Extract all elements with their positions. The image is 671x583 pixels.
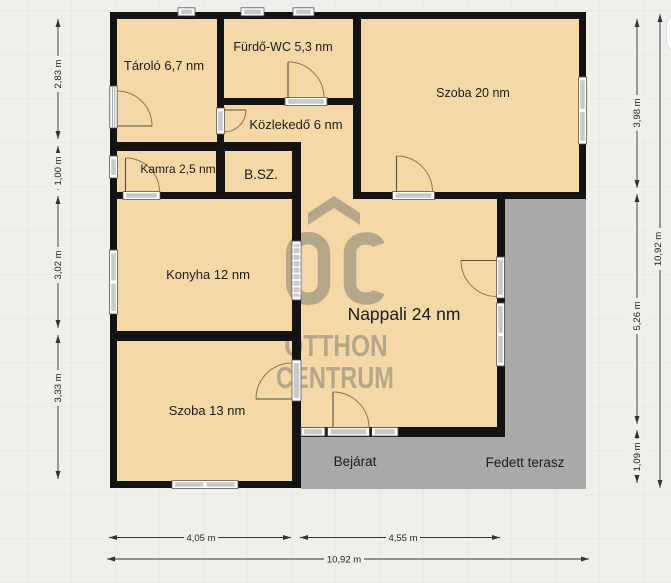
svg-text:3,33 m: 3,33 m bbox=[53, 373, 64, 402]
svg-text:B.SZ.: B.SZ. bbox=[244, 167, 278, 182]
svg-text:3,02 m: 3,02 m bbox=[53, 250, 64, 279]
svg-text:Szoba 13 nm: Szoba 13 nm bbox=[169, 403, 246, 418]
svg-text:3,98 m: 3,98 m bbox=[632, 98, 643, 127]
svg-text:10,92 m: 10,92 m bbox=[653, 232, 664, 266]
svg-text:Kamra 2,5 nm: Kamra 2,5 nm bbox=[140, 162, 215, 176]
svg-text:Nappali 24 nm: Nappali 24 nm bbox=[348, 304, 461, 324]
svg-text:1,00 m: 1,00 m bbox=[53, 156, 64, 185]
svg-text:Fedett terasz: Fedett terasz bbox=[486, 455, 565, 470]
svg-text:2,83 m: 2,83 m bbox=[53, 59, 64, 88]
svg-text:Tároló 6,7 nm: Tároló 6,7 nm bbox=[124, 58, 204, 73]
svg-text:10,92 m: 10,92 m bbox=[327, 555, 361, 566]
svg-text:4,55 m: 4,55 m bbox=[388, 533, 417, 544]
svg-text:4,05 m: 4,05 m bbox=[186, 533, 215, 544]
svg-text:Konyha 12 nm: Konyha 12 nm bbox=[166, 267, 250, 282]
svg-text:Fürdő-WC 5,3 nm: Fürdő-WC 5,3 nm bbox=[233, 40, 332, 54]
svg-text:Közlekedő 6 nm: Közlekedő 6 nm bbox=[249, 117, 342, 132]
svg-text:1,09 m: 1,09 m bbox=[632, 442, 643, 471]
svg-text:Bejárat: Bejárat bbox=[334, 454, 377, 469]
svg-text:5,26 m: 5,26 m bbox=[632, 301, 643, 330]
svg-text:Szoba 20 nm: Szoba 20 nm bbox=[436, 86, 510, 100]
